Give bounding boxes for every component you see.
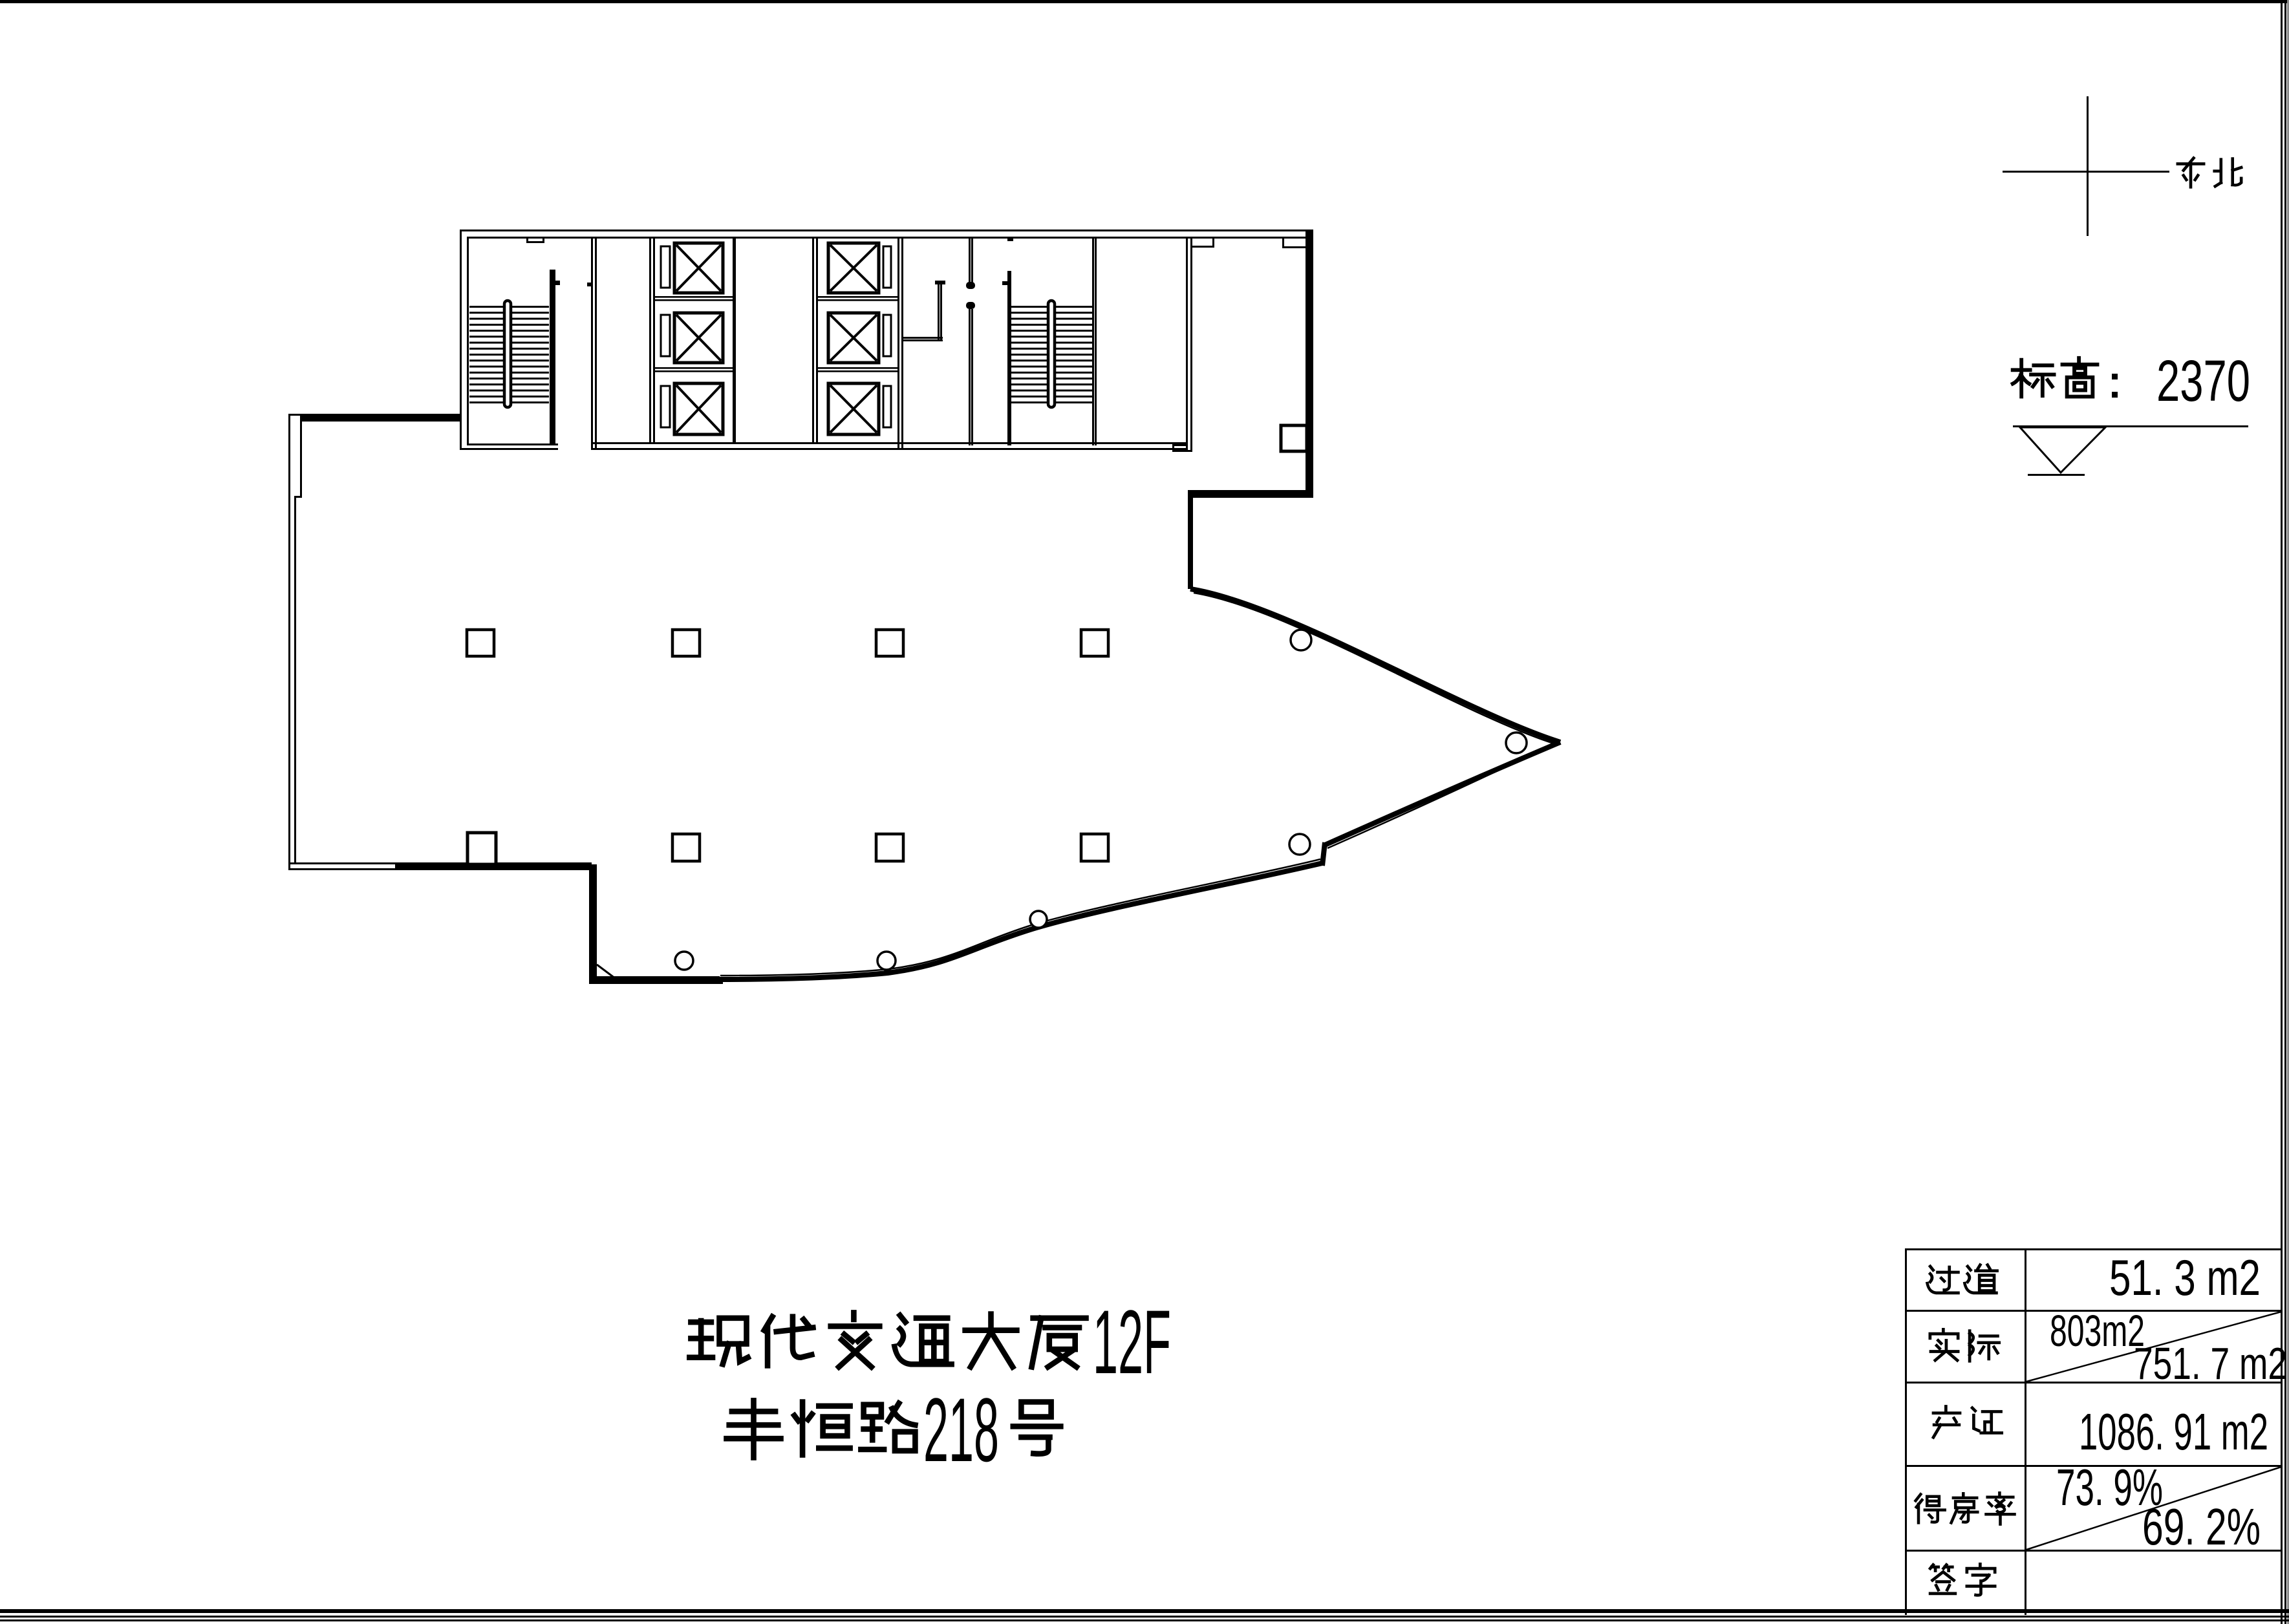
svg-text:751. 7 m2: 751. 7 m2: [2134, 1338, 2287, 1389]
svg-text:12F: 12F: [1093, 1291, 1171, 1393]
svg-text:2370: 2370: [2156, 349, 2250, 414]
svg-text:803m2: 803m2: [2050, 1306, 2145, 1356]
svg-text:69. 2%: 69. 2%: [2142, 1498, 2261, 1555]
svg-text:1086. 91 m2: 1086. 91 m2: [2079, 1403, 2268, 1460]
svg-text:51. 3 m2: 51. 3 m2: [2109, 1249, 2261, 1306]
svg-text:218: 218: [923, 1379, 999, 1480]
